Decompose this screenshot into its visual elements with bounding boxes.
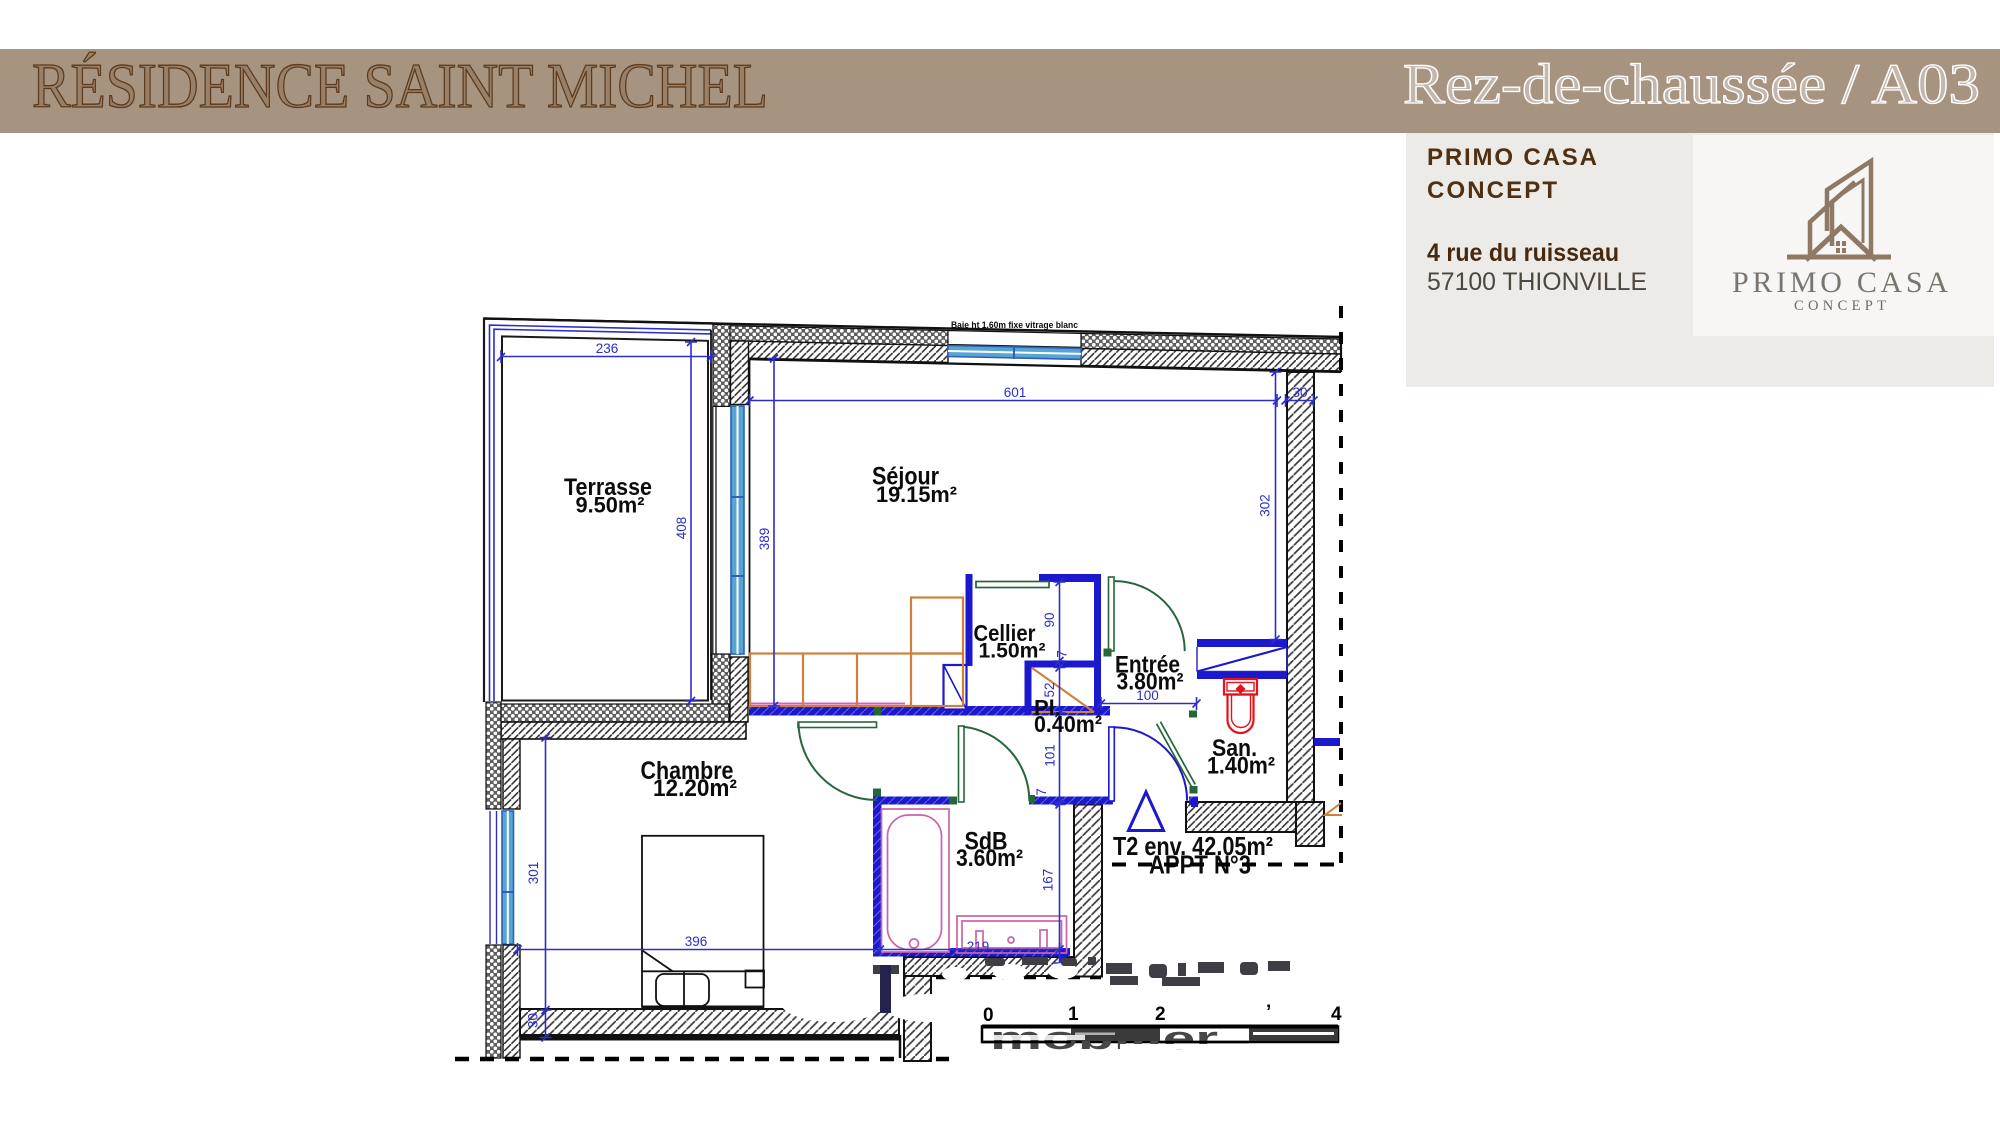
svg-text:3.60m²: 3.60m² [956,845,1023,872]
svg-text:1: 1 [1068,1004,1079,1025]
svg-text:CONCEPT: CONCEPT [1794,298,1886,314]
svg-text:30: 30 [526,1013,541,1028]
svg-text:CONCEPT: CONCEPT [1427,177,1557,204]
svg-text:Rez-de-chaussée / A03: Rez-de-chaussée / A03 [1403,53,1980,116]
svg-text:19.15m²: 19.15m² [876,482,957,507]
svg-text:389: 389 [757,528,772,551]
svg-text:Baie ht 1.60m fixe vitrage bla: Baie ht 1.60m fixe vitrage blanc [951,320,1078,331]
svg-text:2: 2 [1155,1004,1166,1025]
svg-text:4: 4 [1331,1004,1342,1025]
svg-text:30: 30 [1292,385,1307,400]
svg-text:RÉSIDENCE SAINT MICHEL: RÉSIDENCE SAINT MICHEL [32,51,768,121]
svg-text:9.50m²: 9.50m² [576,493,645,518]
svg-text:302: 302 [1258,494,1273,517]
svg-text:3.80m²: 3.80m² [1117,669,1184,696]
svg-text:’: ’ [1266,1002,1271,1023]
svg-text:57100 THIONVILLE: 57100 THIONVILLE [1427,268,1647,296]
svg-text:408: 408 [674,517,689,540]
svg-text:0: 0 [983,1005,994,1026]
svg-text:1.50m²: 1.50m² [979,640,1046,663]
svg-text:90: 90 [1042,612,1057,627]
svg-text:7: 7 [1034,788,1049,796]
svg-text:101: 101 [1043,744,1058,767]
svg-text:PRIMO CASA: PRIMO CASA [1427,144,1597,171]
svg-text:219: 219 [967,939,990,954]
svg-text:0.40m²: 0.40m² [1034,711,1102,737]
svg-text:167: 167 [1041,869,1056,892]
svg-text:7: 7 [1055,650,1070,658]
svg-text:601: 601 [1004,385,1027,400]
svg-text:236: 236 [596,341,619,356]
svg-text:12.20m²: 12.20m² [653,775,737,802]
svg-text:4 rue du ruisseau: 4 rue du ruisseau [1427,239,1619,267]
svg-text:301: 301 [526,862,541,885]
svg-text:396: 396 [685,934,708,949]
svg-text:1.40m²: 1.40m² [1207,753,1275,780]
svg-text:PRIMO CASA: PRIMO CASA [1732,266,1948,299]
